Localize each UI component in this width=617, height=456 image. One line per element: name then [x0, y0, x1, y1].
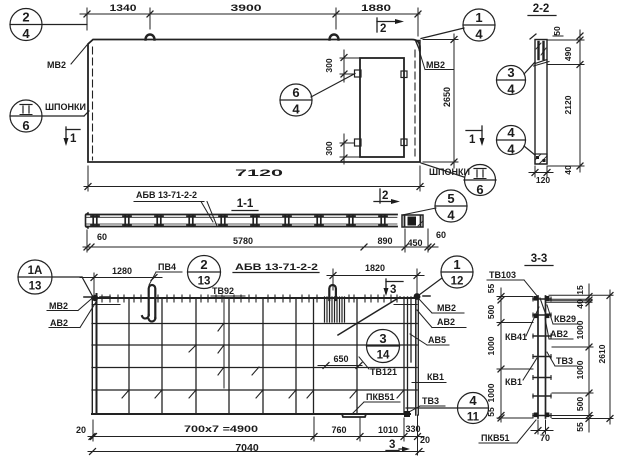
svg-text:ПКВ51: ПКВ51 — [366, 392, 394, 402]
svg-text:АВ2: АВ2 — [550, 329, 568, 339]
svg-text:1000: 1000 — [575, 360, 585, 379]
svg-text:300: 300 — [324, 58, 334, 72]
svg-text:1: 1 — [453, 257, 460, 272]
svg-text:14: 14 — [377, 350, 390, 362]
svg-text:1880: 1880 — [361, 3, 391, 13]
svg-text:1820: 1820 — [365, 263, 385, 273]
svg-text:ПКВ51: ПКВ51 — [481, 433, 509, 443]
svg-text:2: 2 — [22, 10, 29, 25]
svg-text:650: 650 — [333, 354, 348, 364]
svg-text:55: 55 — [486, 284, 496, 294]
svg-text:КВ1: КВ1 — [427, 372, 444, 382]
svg-text:3: 3 — [507, 65, 514, 80]
svg-text:3: 3 — [379, 331, 386, 346]
svg-text:450: 450 — [407, 238, 422, 248]
svg-text:1340: 1340 — [110, 3, 137, 13]
svg-text:490: 490 — [563, 47, 573, 61]
svg-text:4: 4 — [447, 208, 455, 223]
svg-text:ШПОНКИ: ШПОНКИ — [429, 167, 470, 177]
svg-text:1-1: 1-1 — [237, 198, 254, 210]
svg-text:20: 20 — [420, 435, 430, 445]
svg-text:2120: 2120 — [563, 95, 573, 114]
svg-text:300: 300 — [324, 141, 334, 155]
svg-text:2650: 2650 — [442, 87, 452, 107]
svg-text:7120: 7120 — [235, 168, 283, 178]
svg-text:3: 3 — [390, 284, 396, 296]
svg-text:700х7 =4900: 700х7 =4900 — [184, 424, 258, 434]
svg-text:20: 20 — [76, 425, 86, 435]
svg-text:ТВ121: ТВ121 — [370, 367, 397, 377]
svg-text:4: 4 — [507, 142, 515, 157]
svg-text:1000: 1000 — [486, 383, 496, 402]
svg-text:13: 13 — [29, 281, 42, 293]
svg-text:7040: 7040 — [235, 442, 259, 454]
svg-text:2: 2 — [200, 257, 207, 272]
svg-text:4: 4 — [292, 102, 300, 117]
svg-text:ТВ3: ТВ3 — [422, 396, 439, 406]
svg-text:4: 4 — [475, 27, 483, 42]
svg-text:КВ1: КВ1 — [505, 377, 522, 387]
svg-text:6: 6 — [22, 118, 29, 133]
svg-text:55: 55 — [575, 422, 585, 432]
svg-text:40: 40 — [563, 165, 573, 175]
svg-text:МВ2: МВ2 — [49, 301, 68, 311]
svg-text:6: 6 — [476, 182, 483, 197]
svg-text:2: 2 — [380, 23, 386, 35]
svg-text:60: 60 — [97, 232, 107, 242]
svg-text:ТВ92: ТВ92 — [212, 286, 234, 296]
svg-text:3-3: 3-3 — [531, 253, 548, 265]
svg-text:55: 55 — [486, 407, 496, 417]
svg-text:КВ29: КВ29 — [554, 314, 576, 324]
svg-text:МВ2: МВ2 — [426, 60, 445, 70]
svg-text:ШПОНКИ: ШПОНКИ — [45, 102, 86, 112]
svg-text:890: 890 — [377, 236, 392, 246]
svg-text:ТВ103: ТВ103 — [489, 270, 516, 280]
svg-text:ТВ3: ТВ3 — [556, 356, 573, 366]
svg-text:4: 4 — [507, 125, 515, 140]
svg-text:120: 120 — [536, 175, 550, 185]
svg-text:1000: 1000 — [486, 336, 496, 355]
svg-text:1000: 1000 — [575, 320, 585, 339]
svg-text:2610: 2610 — [597, 344, 607, 363]
svg-text:ПВ4: ПВ4 — [158, 262, 176, 272]
svg-text:15: 15 — [575, 285, 585, 295]
svg-text:МВ2: МВ2 — [437, 303, 456, 313]
svg-text:500: 500 — [575, 397, 585, 411]
svg-text:КВ41: КВ41 — [505, 332, 527, 342]
svg-text:4: 4 — [469, 393, 477, 408]
svg-text:330: 330 — [405, 424, 420, 434]
svg-text:6: 6 — [292, 85, 299, 100]
svg-text:2: 2 — [382, 190, 388, 202]
svg-text:12: 12 — [451, 276, 464, 288]
svg-text:13: 13 — [198, 276, 211, 288]
svg-text:11: 11 — [467, 412, 480, 424]
svg-text:АВ5: АВ5 — [428, 335, 446, 345]
svg-text:760: 760 — [331, 425, 346, 435]
svg-text:500: 500 — [486, 305, 496, 319]
svg-text:АВ2: АВ2 — [50, 318, 68, 328]
svg-text:АБВ 13-71-2-2: АБВ 13-71-2-2 — [136, 190, 197, 200]
svg-text:70: 70 — [540, 433, 550, 443]
svg-text:1280: 1280 — [112, 266, 132, 276]
svg-text:1: 1 — [475, 10, 482, 25]
svg-text:АБВ 13-71-2-2: АБВ 13-71-2-2 — [235, 262, 318, 272]
svg-text:1А: 1А — [28, 265, 43, 277]
svg-text:1: 1 — [469, 134, 476, 146]
svg-text:4: 4 — [507, 82, 515, 97]
svg-text:1010: 1010 — [378, 425, 398, 435]
svg-text:АВ2: АВ2 — [437, 317, 455, 327]
svg-text:3: 3 — [389, 439, 395, 451]
svg-text:3900: 3900 — [231, 3, 262, 13]
svg-text:50: 50 — [552, 26, 562, 36]
svg-text:40: 40 — [575, 299, 585, 309]
svg-text:60: 60 — [436, 230, 446, 240]
svg-text:5780: 5780 — [233, 236, 253, 246]
svg-text:1: 1 — [70, 133, 77, 145]
svg-text:4: 4 — [22, 26, 30, 41]
svg-text:2-2: 2-2 — [533, 3, 550, 15]
svg-text:МВ2: МВ2 — [47, 60, 66, 70]
svg-text:5: 5 — [447, 191, 454, 206]
